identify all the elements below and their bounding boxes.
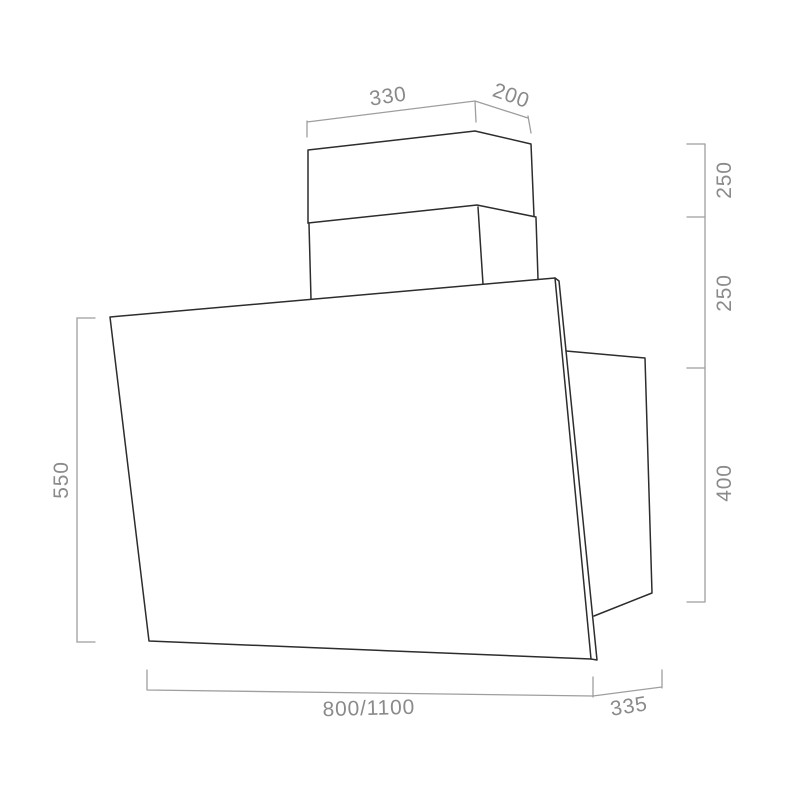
dim-label-chimney-width: 330 bbox=[368, 82, 408, 110]
dimension-labels: 330 200 250 250 400 550 800/1100 335 bbox=[50, 79, 736, 721]
hood-panel-side-edge bbox=[555, 278, 597, 660]
dim-line-left-550 bbox=[77, 318, 95, 642]
chimney-lower-section bbox=[309, 207, 538, 299]
dim-line-right-250-250-400 bbox=[687, 144, 705, 602]
dim-label-lower-chimney-height: 250 bbox=[713, 274, 736, 311]
dim-line-top-330-200 bbox=[307, 101, 531, 137]
diagram-svg: 330 200 250 250 400 550 800/1100 335 bbox=[0, 0, 800, 800]
hood-front-panel bbox=[110, 278, 591, 659]
dim-label-rear-box-height: 400 bbox=[713, 464, 736, 501]
dimension-lines bbox=[77, 101, 705, 697]
dim-label-panel-height: 550 bbox=[50, 461, 73, 498]
dim-label-hood-width: 800/1100 bbox=[322, 696, 415, 721]
product-outline bbox=[110, 131, 652, 660]
dim-label-hood-depth: 335 bbox=[609, 692, 650, 721]
chimney-joint bbox=[308, 205, 536, 223]
hood-dimension-diagram: 330 200 250 250 400 550 800/1100 335 bbox=[0, 0, 800, 800]
dim-line-bottom-800-335 bbox=[147, 670, 662, 697]
dim-label-upper-chimney-height: 250 bbox=[713, 161, 736, 198]
